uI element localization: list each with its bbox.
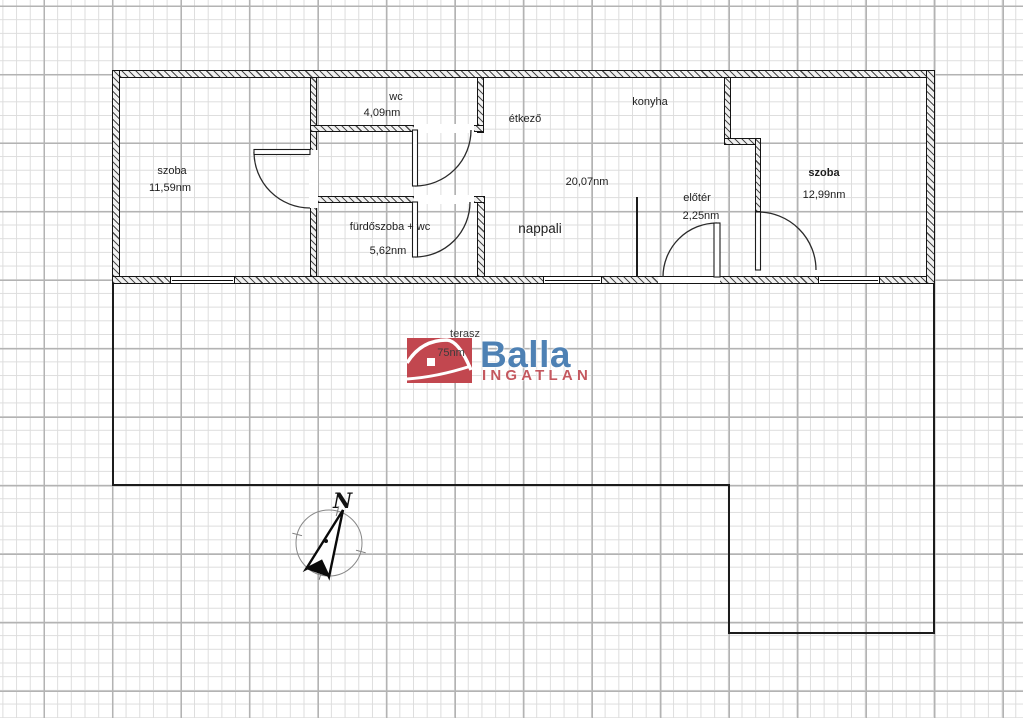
logo-ground-line: [407, 366, 471, 379]
wall-outer-left: [112, 70, 120, 284]
compass-center-dot: [324, 539, 328, 543]
compass-tick: [356, 550, 366, 553]
door-leaf: [413, 130, 418, 186]
door-swing-arc: [415, 130, 471, 186]
wall-interior-v4: [755, 138, 761, 212]
door-opening-wc: [414, 124, 474, 133]
room-area-nappali: 20,07nm: [566, 175, 609, 189]
north-label: N: [332, 488, 353, 513]
logo-subtitle-text: INGATLAN: [482, 367, 592, 384]
window-szoba-left: [170, 276, 235, 284]
logo-window-square: [427, 358, 435, 366]
room-label-szoba-right: szoba: [808, 166, 839, 180]
door-swing-arc: [758, 212, 816, 270]
wall-outer-bottom: [112, 276, 935, 284]
logo-house-graphic: [407, 338, 472, 383]
door-opening-bath: [414, 195, 474, 204]
compass: N: [292, 488, 365, 580]
wall-outer-top: [112, 70, 935, 78]
room-area-wc: 4,09nm: [364, 106, 401, 120]
room-area-terasz: 75nm: [437, 346, 465, 360]
compass-circle: [296, 510, 362, 576]
room-area-szoba-left: 11,59nm: [149, 181, 191, 195]
door-swing-arc: [663, 223, 717, 277]
window-szoba-right: [818, 276, 880, 284]
room-label-konyha: konyha: [632, 95, 667, 109]
window-nappali: [543, 276, 602, 284]
wall-interior-v2b: [477, 196, 485, 277]
room-label-furdoszoba: fürdőszoba + wc: [350, 220, 430, 234]
compass-needle: [306, 510, 343, 577]
room-label-nappali: nappali: [518, 221, 562, 237]
room-area-eloter: 2,25nm: [683, 209, 720, 223]
door-leaf: [254, 150, 310, 155]
door-opening-szoba-left: [309, 150, 318, 208]
wall-interior-v2a: [477, 73, 484, 133]
balla-logo-mark: [407, 338, 472, 383]
entrance-door-opening: [658, 276, 720, 284]
room-label-eloter: előtér: [683, 191, 711, 205]
room-area-szoba-right: 12,99nm: [803, 188, 846, 202]
room-label-wc: wc: [389, 90, 402, 104]
wall-outer-right: [926, 70, 935, 284]
room-label-szoba-left: szoba: [157, 164, 186, 178]
room-label-terasz: terasz: [450, 327, 480, 341]
compass-needle-fill: [306, 561, 329, 577]
door-leaf: [714, 223, 720, 277]
floor-plan-page: N szoba 11,59nm wc 4,09nm étkező konyha …: [0, 0, 1023, 718]
compass-tick: [336, 506, 339, 516]
room-label-etkezo: étkező: [509, 112, 541, 126]
door-swing-arc: [254, 152, 310, 208]
compass-tick: [319, 570, 322, 580]
wall-interior-v3: [724, 73, 731, 143]
compass-tick: [292, 533, 302, 536]
room-area-furdoszoba: 5,62nm: [370, 244, 407, 258]
door-leaf: [756, 212, 761, 270]
